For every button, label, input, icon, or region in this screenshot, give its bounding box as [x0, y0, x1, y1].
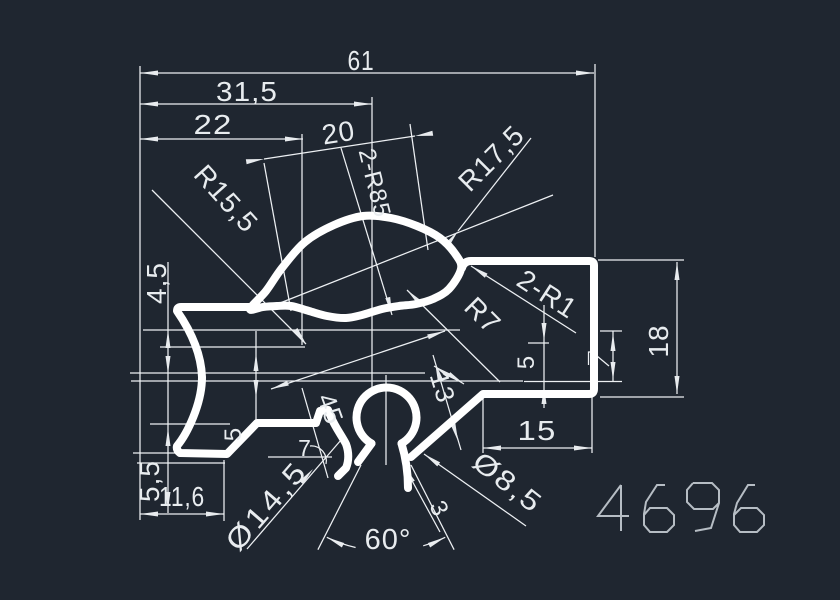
svg-text:15: 15	[518, 415, 557, 446]
svg-text:18: 18	[643, 324, 674, 357]
svg-text:5: 5	[220, 427, 247, 441]
svg-text:22: 22	[194, 109, 233, 140]
svg-text:31,5: 31,5	[216, 76, 278, 107]
svg-text:60°: 60°	[365, 524, 412, 556]
svg-text:5: 5	[513, 355, 540, 369]
svg-text:20: 20	[320, 115, 358, 151]
svg-text:4,5: 4,5	[141, 262, 172, 304]
svg-text:7: 7	[298, 435, 312, 461]
svg-text:11,6: 11,6	[159, 481, 205, 512]
svg-text:61: 61	[348, 45, 375, 76]
